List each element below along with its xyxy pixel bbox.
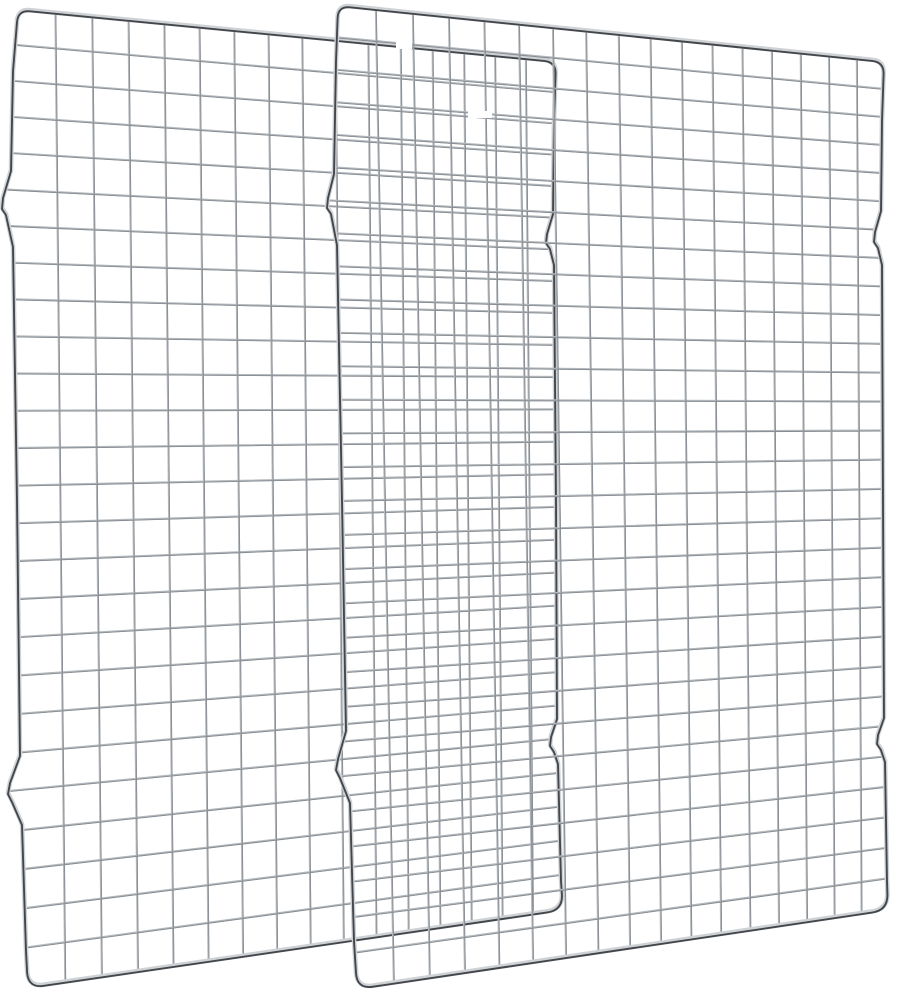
wire-highlight-gap [396,40,412,49]
product-image [0,0,899,1000]
cooling-racks-illustration [0,0,899,1000]
wire-highlight-gap [783,111,800,118]
front-rack [327,6,888,987]
wire-highlight-gap [468,111,492,118]
